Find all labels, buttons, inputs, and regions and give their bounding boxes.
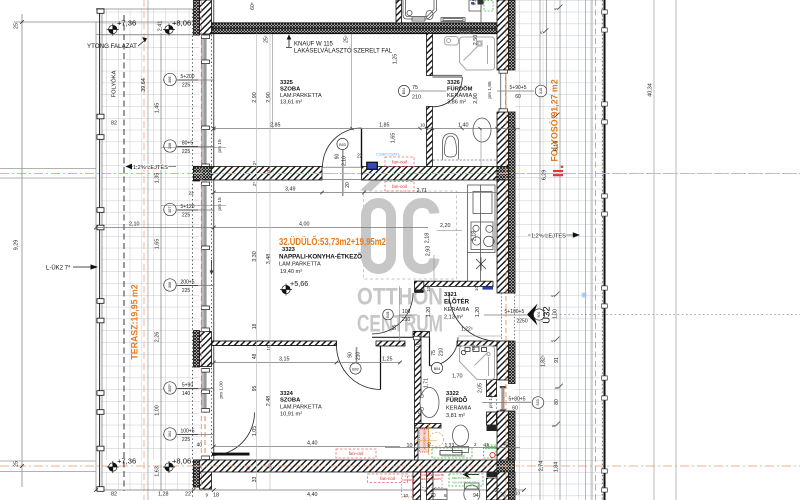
svg-text:1,70: 1,70: [452, 374, 463, 380]
svg-text:4,40: 4,40: [307, 492, 318, 498]
svg-text:25⁵: 25⁵: [264, 35, 270, 43]
svg-text:20: 20: [345, 182, 351, 188]
svg-text:3,86 m²: 3,86 m²: [447, 100, 466, 106]
svg-text:2,10: 2,10: [342, 156, 348, 166]
svg-text:KNAUF W 115: KNAUF W 115: [294, 42, 334, 48]
svg-text:3321: 3321: [444, 292, 458, 298]
svg-text:B03: B03: [339, 143, 345, 147]
svg-text:3,15: 3,15: [279, 357, 290, 363]
svg-text:1,65: 1,65: [155, 239, 161, 250]
svg-text:140: 140: [182, 391, 191, 397]
svg-text:80+5: 80+5: [182, 141, 193, 147]
svg-text:5+100+5: 5+100+5: [505, 309, 525, 315]
svg-text:Ü32: Ü32: [542, 306, 553, 323]
svg-text:1,40: 1,40: [458, 123, 469, 129]
svg-text:80: 80: [554, 399, 560, 405]
svg-text:6,16: 6,16: [554, 141, 560, 152]
svg-text:10⁵: 10⁵: [471, 343, 476, 350]
svg-text:3322: 3322: [446, 391, 459, 397]
svg-text:ELÕTÉR: ELÕTÉR: [444, 298, 470, 306]
svg-text:10: 10: [515, 491, 521, 496]
svg-text:pm 15: pm 15: [217, 197, 223, 211]
svg-text:225: 225: [182, 437, 191, 443]
svg-text:1,45: 1,45: [155, 103, 161, 114]
svg-text:60⁵: 60⁵: [250, 2, 256, 10]
svg-text:225: 225: [182, 83, 191, 89]
svg-text:FÜRDÕ: FÜRDÕ: [446, 397, 468, 404]
svg-text:10: 10: [403, 493, 409, 498]
svg-text:100+5: 100+5: [180, 429, 194, 435]
svg-text:40,34: 40,34: [648, 83, 654, 97]
svg-text:YTONG FALAZAT: YTONG FALAZAT: [87, 43, 137, 50]
svg-text:304: 304: [168, 431, 172, 437]
svg-text:40: 40: [427, 442, 432, 448]
svg-text:5+120: 5+120: [180, 204, 194, 210]
svg-text:210: 210: [402, 317, 411, 323]
svg-text:LAM.PARKETTA: LAM.PARKETTA: [279, 262, 321, 268]
svg-text:1,00: 1,00: [553, 309, 559, 319]
svg-text:90: 90: [348, 352, 354, 358]
svg-text:3326: 3326: [447, 80, 461, 86]
svg-text:1,33: 1,33: [445, 443, 455, 449]
svg-text:pm 1,85: pm 1,85: [488, 392, 493, 408]
svg-text:33: 33: [252, 477, 258, 483]
svg-text:1,35: 1,35: [155, 173, 161, 184]
svg-text:II.: II.: [550, 165, 567, 178]
svg-text:TERASZ:19,95 m2: TERASZ:19,95 m2: [130, 284, 140, 359]
svg-text:KONDENZ.: KONDENZ.: [402, 478, 416, 482]
svg-text:1,65: 1,65: [391, 133, 397, 144]
svg-text:225: 225: [182, 149, 191, 155]
svg-text:pm 1,00: pm 1,00: [219, 381, 225, 399]
svg-text:25: 25: [14, 23, 20, 29]
svg-text:10: 10: [266, 345, 272, 351]
svg-text:2,13 m²: 2,13 m²: [444, 315, 463, 321]
svg-text:1,63: 1,63: [155, 466, 161, 477]
svg-text:3,30: 3,30: [252, 251, 258, 262]
svg-text:305⁵: 305⁵: [168, 384, 172, 392]
svg-text:95: 95: [252, 386, 258, 392]
svg-text:15: 15: [484, 442, 490, 447]
svg-text:VILLANYBOJLER: VILLANYBOJLER: [441, 454, 466, 458]
svg-text:13,61 m²: 13,61 m²: [280, 100, 302, 106]
svg-text:NAPPALI-KONYHA-ÉTKEZÕ: NAPPALI-KONYHA-ÉTKEZÕ: [279, 253, 362, 261]
svg-text:B02: B02: [352, 367, 358, 371]
svg-text:+7,36: +7,36: [117, 19, 136, 28]
svg-text:10: 10: [407, 443, 413, 449]
svg-text:315: 315: [539, 88, 543, 94]
svg-text:48: 48: [252, 354, 258, 360]
svg-text:KERÁMIA: KERÁMIA: [446, 405, 471, 412]
svg-text:30: 30: [500, 493, 506, 499]
svg-text:22: 22: [357, 154, 363, 160]
svg-text:fan-coil: fan-coil: [349, 451, 364, 456]
svg-text:2,41: 2,41: [158, 21, 164, 32]
svg-text:2250: 2250: [517, 319, 528, 325]
svg-text:82: 82: [111, 121, 117, 127]
svg-text:4,00: 4,00: [299, 222, 310, 228]
svg-text:18: 18: [252, 324, 258, 330]
svg-text:3323: 3323: [282, 247, 296, 253]
svg-text:3,81 m²: 3,81 m²: [446, 413, 465, 419]
svg-text:LAKÁSELVÁLASZTÓ SZERELT FAL: LAKÁSELVÁLASZTÓ SZERELT FAL: [294, 48, 393, 55]
svg-text:10: 10: [420, 123, 426, 128]
svg-text:100: 100: [402, 309, 411, 315]
svg-text:SZOBA: SZOBA: [280, 398, 301, 404]
svg-text:2,90: 2,90: [266, 92, 272, 103]
svg-text:2,85: 2,85: [270, 123, 281, 129]
svg-text:B04: B04: [402, 88, 406, 94]
svg-text:225: 225: [182, 288, 191, 294]
svg-text:2,05: 2,05: [478, 383, 484, 393]
svg-text:B04: B04: [434, 367, 440, 371]
svg-text:SZOBA: SZOBA: [280, 87, 301, 93]
svg-text:1,00: 1,00: [155, 405, 161, 416]
svg-text:22: 22: [189, 191, 195, 197]
svg-text:1,2% LEJTÉS: 1,2% LEJTÉS: [133, 164, 168, 171]
svg-text:2,26: 2,26: [155, 332, 161, 343]
svg-text:1,22⁵: 1,22⁵: [461, 327, 473, 333]
svg-text:6: 6: [444, 493, 447, 498]
svg-text:22: 22: [185, 492, 191, 498]
svg-text:6,29: 6,29: [542, 170, 548, 181]
svg-text:1,71: 1,71: [424, 378, 430, 388]
svg-text:2,93: 2,93: [426, 246, 432, 257]
svg-text:10: 10: [474, 286, 479, 292]
svg-text:210: 210: [356, 352, 362, 361]
svg-text:30: 30: [266, 170, 272, 176]
svg-text:91: 91: [554, 357, 560, 363]
svg-text:+8,06: +8,06: [172, 19, 191, 28]
svg-text:9,29: 9,29: [14, 240, 20, 251]
svg-text:315: 315: [536, 399, 540, 405]
svg-text:82: 82: [111, 492, 117, 498]
svg-text:3,49: 3,49: [285, 187, 296, 193]
svg-text:25⁵: 25⁵: [344, 35, 350, 43]
svg-text:VILLANYBOJLER: VILLANYBOJLER: [452, 481, 477, 485]
svg-text:fan-coil: fan-coil: [392, 159, 407, 164]
svg-text:306: 306: [168, 282, 172, 288]
svg-text:FOLYÓKA: FOLYÓKA: [111, 70, 118, 97]
svg-text:3324: 3324: [280, 391, 294, 397]
svg-text:75: 75: [412, 85, 418, 91]
svg-text:+7,36: +7,36: [117, 457, 136, 466]
svg-text:75: 75: [431, 350, 437, 356]
svg-text:200+5: 200+5: [180, 280, 194, 286]
svg-text:2,90: 2,90: [252, 92, 258, 103]
svg-text:LAM.PARKETTA: LAM.PARKETTA: [280, 93, 322, 99]
svg-text:5+200: 5+200: [180, 74, 194, 80]
svg-text:LAM.PARKETTA: LAM.PARKETTA: [280, 405, 322, 411]
svg-text:1,85: 1,85: [379, 123, 390, 129]
svg-text:19,40 m²: 19,40 m²: [280, 269, 302, 275]
svg-text:2,20: 2,20: [440, 223, 451, 229]
svg-text:3325: 3325: [280, 80, 294, 86]
svg-text:10: 10: [417, 411, 422, 417]
svg-text:KERÁMIA: KERÁMIA: [444, 306, 469, 313]
svg-text:10⁵: 10⁵: [426, 285, 431, 292]
svg-text:2,18: 2,18: [472, 231, 478, 242]
svg-text:5+90: 5+90: [182, 383, 193, 389]
svg-text:94: 94: [473, 493, 479, 499]
svg-text:2,50: 2,50: [473, 35, 479, 46]
svg-text:pm 15: pm 15: [217, 139, 223, 153]
svg-text:2,71: 2,71: [417, 188, 428, 194]
svg-text:MENNYEZETI: MENNYEZETI: [452, 476, 472, 480]
svg-text:3,48: 3,48: [266, 254, 272, 265]
svg-text:BEKÖTVE EGPL.: BEKÖTVE EGPL.: [420, 477, 442, 481]
svg-text:301: 301: [537, 311, 541, 317]
svg-text:25: 25: [14, 461, 20, 467]
svg-text:55: 55: [392, 325, 398, 331]
svg-text:4,40: 4,40: [307, 441, 318, 447]
svg-text:+8,06: +8,06: [172, 457, 191, 466]
svg-text:60: 60: [512, 406, 518, 412]
svg-text:10: 10: [416, 342, 421, 348]
svg-text:2,10: 2,10: [129, 222, 140, 228]
svg-text:60: 60: [515, 94, 521, 100]
svg-text:18: 18: [213, 493, 219, 499]
svg-text:B01: B01: [386, 311, 390, 317]
svg-text:+5,66: +5,66: [290, 279, 308, 288]
svg-text:10,91 m²: 10,91 m²: [280, 412, 302, 418]
svg-text:5+90+5: 5+90+5: [510, 85, 527, 91]
svg-text:pm 1,65: pm 1,65: [487, 81, 493, 99]
svg-text:210: 210: [412, 95, 421, 101]
svg-text:9: 9: [206, 493, 209, 498]
svg-text:1,2% LEJTÉS: 1,2% LEJTÉS: [531, 232, 566, 239]
svg-text:1,82⁵: 1,82⁵: [541, 355, 547, 367]
svg-text:225: 225: [182, 213, 191, 219]
svg-text:2,48: 2,48: [266, 396, 272, 407]
svg-text:39,64: 39,64: [141, 78, 147, 92]
svg-text:9,5: 9,5: [472, 0, 478, 5]
svg-text:1,20: 1,20: [426, 307, 432, 318]
svg-text:1,20: 1,20: [475, 307, 481, 318]
svg-text:KERÁMIA: KERÁMIA: [447, 92, 472, 99]
svg-text:210: 210: [439, 348, 445, 357]
svg-text:1,84: 1,84: [554, 462, 560, 473]
svg-text:90: 90: [335, 154, 341, 160]
svg-text:fan-coil: fan-coil: [392, 184, 407, 189]
svg-text:2,18: 2,18: [425, 233, 431, 244]
svg-text:307': 307': [168, 206, 172, 213]
svg-text:32.ÜDÜLÕ:53,73m2+19,95m2: 32.ÜDÜLÕ:53,73m2+19,95m2: [279, 235, 386, 248]
svg-text:1,28: 1,28: [158, 492, 169, 498]
svg-text:2,90: 2,90: [473, 93, 479, 104]
svg-text:5+80+5: 5+80+5: [509, 397, 526, 403]
svg-text:308: 308: [168, 143, 172, 149]
svg-text:FÜRDÕM: FÜRDÕM: [447, 86, 473, 93]
svg-text:306': 306': [168, 76, 172, 83]
svg-text:1,25: 1,25: [393, 54, 399, 65]
svg-text:70: 70: [430, 493, 436, 499]
svg-text:fan-coil: fan-coil: [380, 476, 395, 481]
svg-text:CSAP.CSATL.: CSAP.CSATL.: [376, 152, 401, 157]
svg-text:L-ÜK2 7*: L-ÜK2 7*: [46, 265, 71, 272]
svg-text:1,25: 1,25: [382, 357, 393, 363]
svg-text:2,74: 2,74: [539, 461, 545, 472]
svg-text:1,05: 1,05: [252, 426, 258, 437]
